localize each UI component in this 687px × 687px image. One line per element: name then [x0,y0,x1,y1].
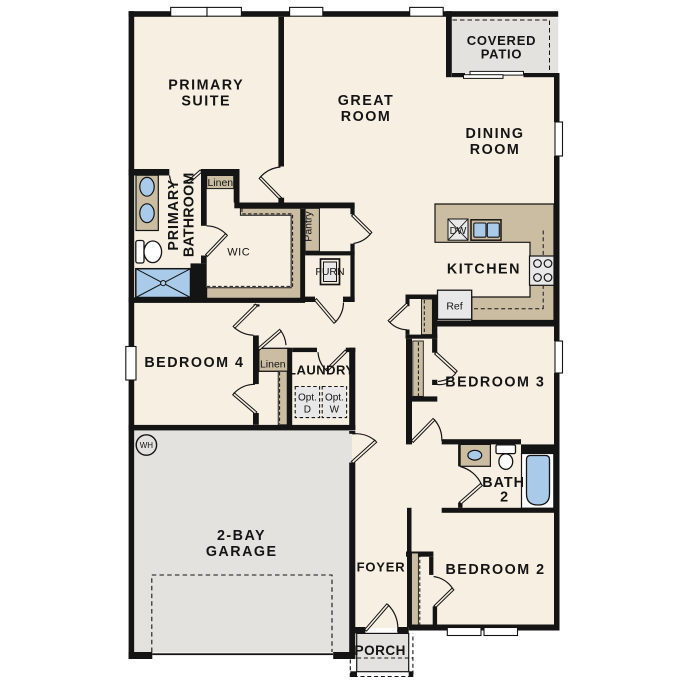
svg-text:BEDROOM 3: BEDROOM 3 [445,375,545,391]
svg-text:FURN: FURN [315,266,344,278]
svg-text:D: D [304,405,311,416]
svg-text:BEDROOM 4: BEDROOM 4 [144,355,244,371]
svg-text:WH: WH [140,441,154,450]
svg-text:W: W [330,405,340,416]
svg-text:LAUNDRY: LAUNDRY [288,362,355,377]
svg-text:FOYER: FOYER [357,559,406,574]
svg-text:WIC: WIC [227,247,250,259]
svg-text:2-BAY: 2-BAY [217,528,266,544]
svg-text:Opt.: Opt. [298,393,317,404]
svg-text:BEDROOM 2: BEDROOM 2 [445,562,545,578]
svg-text:DINING: DINING [465,126,524,142]
svg-text:GARAGE: GARAGE [206,544,278,560]
svg-text:DW: DW [450,226,467,237]
svg-text:Opt.: Opt. [325,393,344,404]
svg-text:PRIMARY: PRIMARY [168,78,244,94]
svg-text:Ref: Ref [446,301,462,313]
svg-text:GREAT: GREAT [338,93,394,109]
svg-text:PRIMARY: PRIMARY [166,179,182,251]
svg-text:Pantry: Pantry [303,211,315,242]
svg-text:ROOM: ROOM [470,142,520,158]
svg-text:PATIO: PATIO [481,46,523,61]
svg-text:BATHROOM: BATHROOM [181,172,197,257]
svg-text:2: 2 [500,490,509,506]
svg-text:ROOM: ROOM [341,109,391,125]
svg-text:Linen: Linen [207,177,233,189]
svg-text:PORCH: PORCH [355,643,406,658]
svg-text:KITCHEN: KITCHEN [447,262,521,278]
svg-text:Linen: Linen [260,358,286,370]
svg-text:SUITE: SUITE [181,94,231,110]
